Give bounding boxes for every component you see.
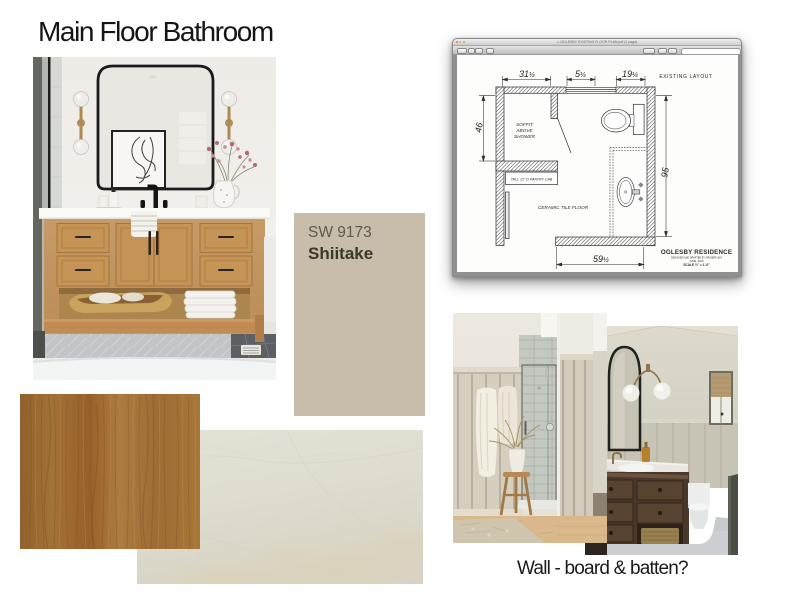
svg-text:ABOVE: ABOVE — [515, 128, 533, 133]
svg-text:SOFFIT: SOFFIT — [516, 122, 534, 127]
svg-text:EXISTING LAYOUT: EXISTING LAYOUT — [659, 74, 712, 80]
svg-text:TALL 12" D PANTRY CAB: TALL 12" D PANTRY CAB — [511, 178, 553, 182]
svg-text:OGLESBY RESIDENCE: OGLESBY RESIDENCE — [661, 249, 732, 256]
svg-text:SHOWER: SHOWER — [514, 134, 536, 139]
svg-text:46: 46 — [473, 122, 485, 134]
svg-text:CERAMIC TILE FLOOR: CERAMIC TILE FLOOR — [538, 205, 589, 210]
svg-text:SCALE ½" = 1'-0": SCALE ½" = 1'-0" — [683, 263, 710, 267]
